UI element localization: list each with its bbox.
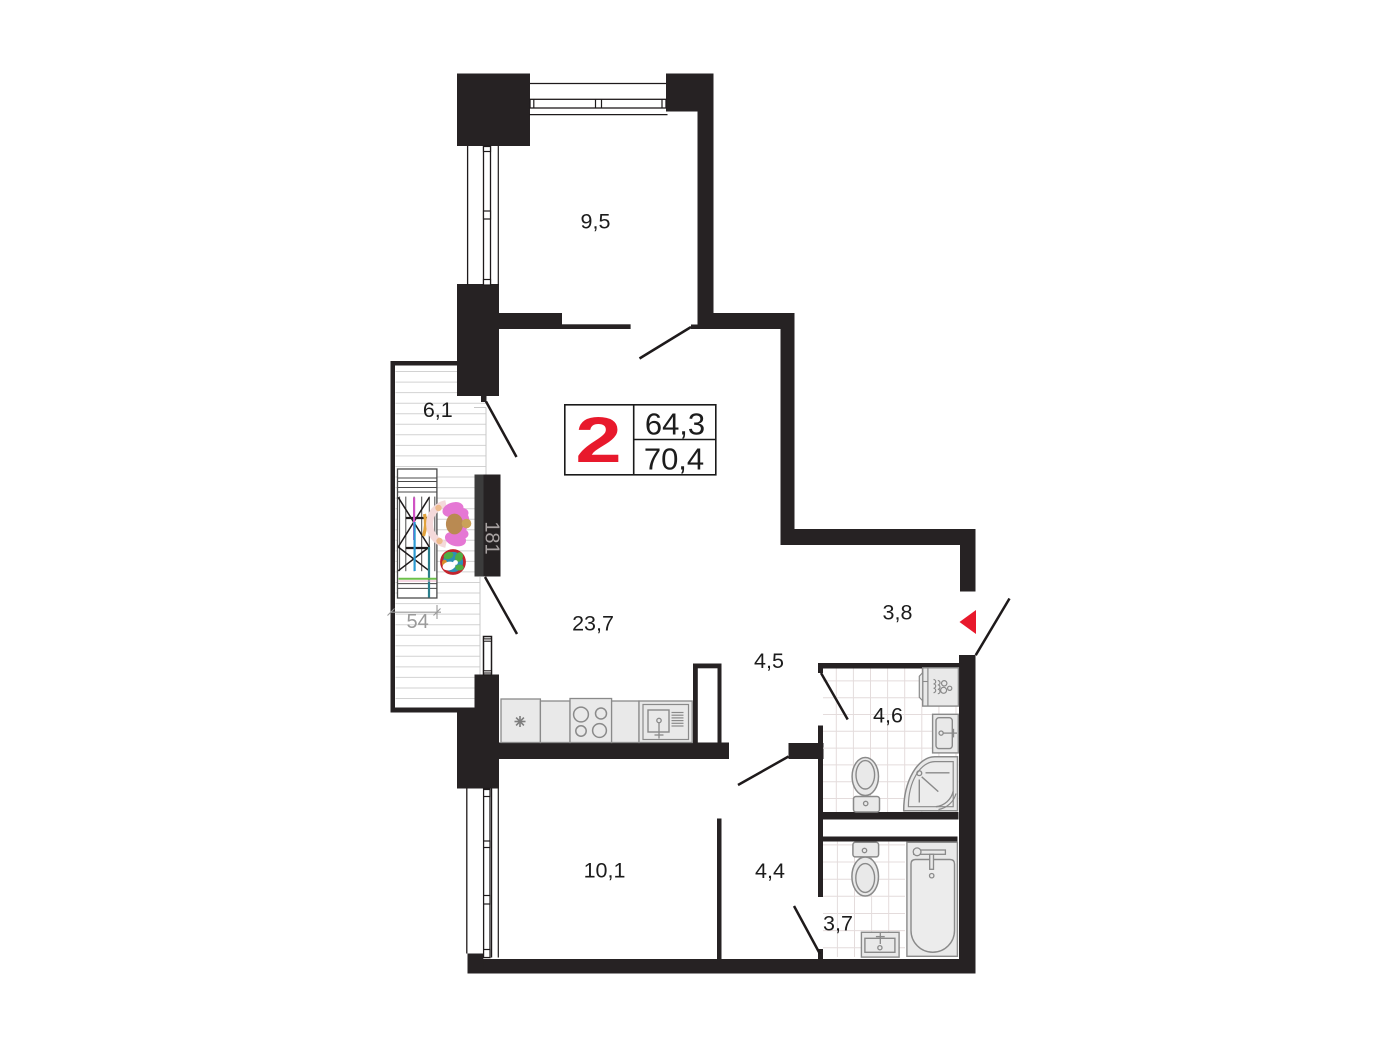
- svg-text:6,1: 6,1: [423, 398, 453, 422]
- svg-text:10,1: 10,1: [584, 859, 626, 883]
- svg-text:181: 181: [481, 521, 503, 554]
- svg-text:70,4: 70,4: [644, 441, 704, 476]
- svg-text:9,5: 9,5: [581, 210, 611, 234]
- svg-text:4,5: 4,5: [754, 649, 784, 673]
- svg-text:23,7: 23,7: [572, 612, 614, 636]
- svg-text:54: 54: [406, 611, 428, 633]
- svg-text:3,7: 3,7: [823, 912, 853, 936]
- svg-text:4,4: 4,4: [755, 859, 785, 883]
- svg-text:3,8: 3,8: [883, 601, 913, 625]
- svg-text:2: 2: [575, 404, 621, 476]
- svg-text:4,6: 4,6: [873, 704, 903, 728]
- svg-text:64,3: 64,3: [645, 407, 705, 442]
